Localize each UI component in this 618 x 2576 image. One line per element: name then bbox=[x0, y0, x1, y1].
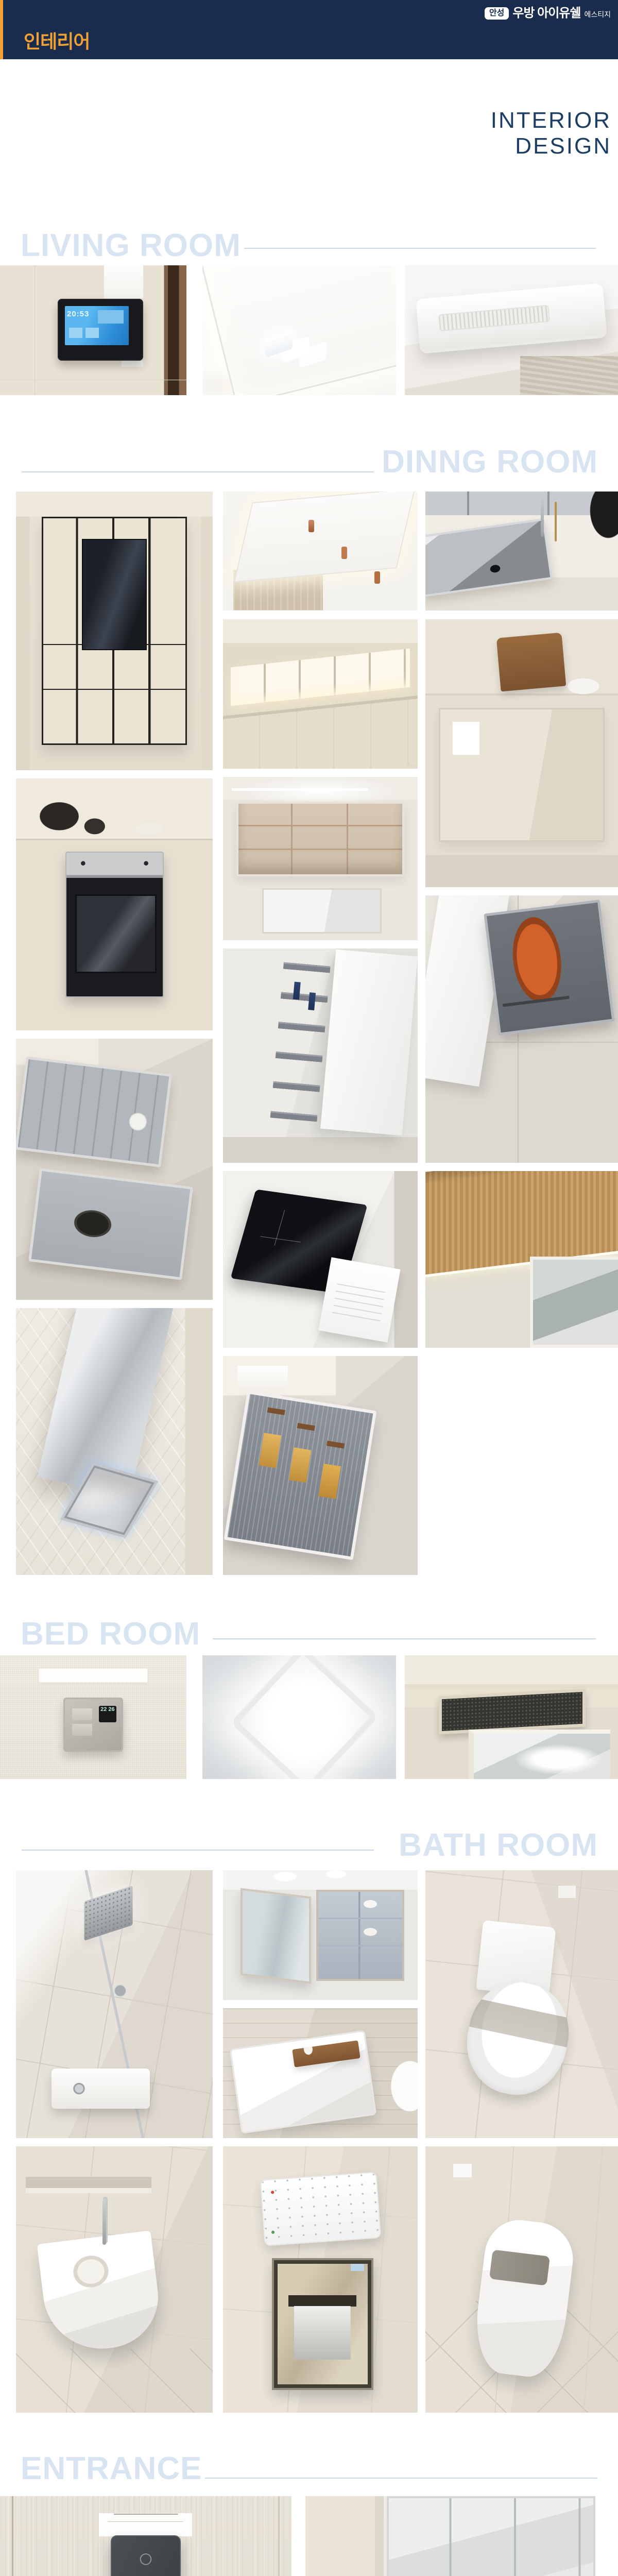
switch-temperature-display: 22 26 bbox=[99, 1706, 116, 1722]
photo-dining-open-wall-cabinets bbox=[223, 777, 418, 940]
photo-bath-two-piece-toilet bbox=[425, 1870, 618, 2138]
photo-dining-ceiling-pendants bbox=[223, 492, 418, 611]
photo-bath-bathtub bbox=[223, 2008, 418, 2138]
photo-bath-wall-hung-basin bbox=[16, 2146, 213, 2413]
section-divider-line-dining bbox=[22, 471, 374, 472]
photo-dining-induction-cooktop bbox=[223, 1171, 418, 1348]
interior-design-line2: DESIGN bbox=[491, 133, 611, 159]
photo-bed-ceiling-light bbox=[202, 1655, 396, 1779]
section-title-living-room: LIVING ROOM bbox=[21, 230, 241, 262]
photo-dining-fridge-cabinet bbox=[16, 492, 213, 770]
photo-entrance-light-switch bbox=[0, 2496, 291, 2576]
photo-bath-shower-set bbox=[16, 1870, 213, 2138]
photo-bath-bidet-control-dispenser bbox=[223, 2146, 418, 2413]
project-badge: 안성 우방 아이유쉘 에스티지 bbox=[485, 7, 611, 20]
photo-dining-island-drawers bbox=[223, 1356, 418, 1575]
photo-dining-undermount-sink bbox=[425, 492, 618, 611]
section-title-dining-room: DINNG ROOM bbox=[382, 446, 598, 478]
section-divider-line-bath bbox=[22, 1850, 374, 1851]
page: 인테리어 안성 우방 아이유쉘 에스티지 INTERIOR DESIGN LIV… bbox=[0, 0, 618, 2576]
photo-bed-window-vent bbox=[405, 1655, 618, 1779]
photo-dining-bottle-pullout bbox=[223, 948, 418, 1163]
photo-living-ceiling-light bbox=[202, 265, 396, 395]
photo-living-wallpad: 20:53 bbox=[0, 265, 186, 395]
photo-bed-control-switch: 22 26 bbox=[0, 1655, 186, 1779]
badge-location-tag: 안성 bbox=[485, 7, 509, 20]
wallpad-clock-text: 20:53 bbox=[67, 310, 89, 318]
top-header-bar: 인테리어 안성 우방 아이유쉘 에스티지 bbox=[0, 0, 618, 59]
photo-dining-upper-cabinet-lighting bbox=[223, 619, 418, 769]
photo-dining-built-in-oven bbox=[16, 778, 213, 1030]
interior-design-line1: INTERIOR bbox=[491, 108, 611, 133]
section-title-bed-room: BED ROOM bbox=[21, 1618, 200, 1650]
section-divider-line-living bbox=[244, 248, 596, 249]
photo-dining-wood-cabinet-led bbox=[425, 1171, 618, 1348]
photo-living-air-conditioner bbox=[405, 265, 618, 395]
header-accent-stripe bbox=[0, 0, 3, 59]
section-title-bath-room: BATH ROOM bbox=[399, 1829, 598, 1861]
section-divider-line-bed bbox=[213, 1638, 596, 1639]
photo-bath-mirror-cabinet bbox=[223, 1870, 418, 2000]
photo-bath-smart-toilet bbox=[425, 2146, 618, 2413]
badge-brand-name: 우방 아이유쉘 bbox=[512, 7, 580, 20]
photo-dining-corner-pan-drawer bbox=[425, 895, 618, 1163]
badge-brand-suffix: 에스티지 bbox=[584, 11, 611, 18]
photo-dining-island-hood bbox=[16, 1308, 213, 1575]
photo-dining-dishwasher bbox=[425, 619, 618, 887]
section-divider-line-entrance bbox=[205, 2478, 597, 2479]
photo-dining-cutlery-drawers bbox=[16, 1039, 213, 1300]
photo-entrance-threshold bbox=[305, 2496, 595, 2576]
page-title-korean: 인테리어 bbox=[24, 27, 90, 54]
section-title-entrance: ENTRANCE bbox=[21, 2453, 202, 2485]
interior-design-heading: INTERIOR DESIGN bbox=[491, 108, 611, 159]
